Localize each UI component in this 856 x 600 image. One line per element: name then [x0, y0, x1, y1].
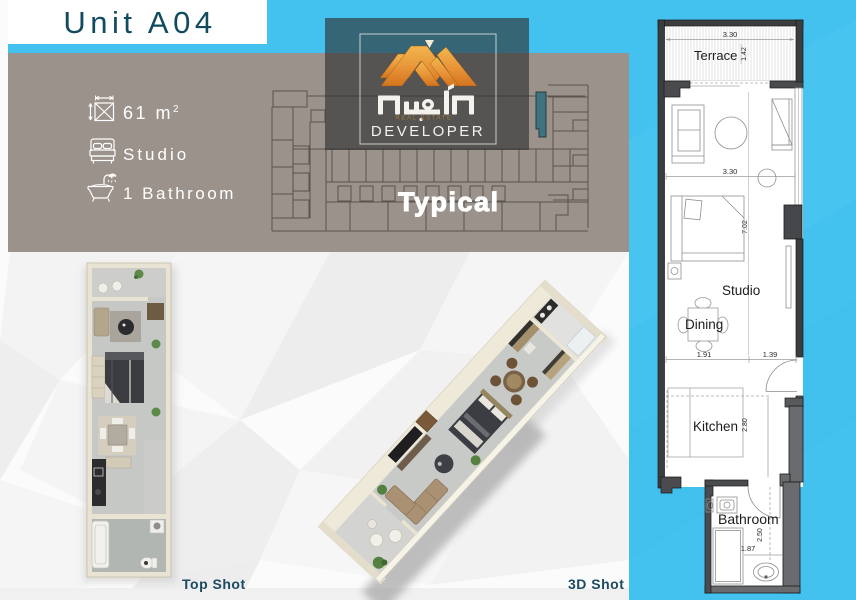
- svg-text:Terrace: Terrace: [694, 48, 737, 63]
- svg-text:Studio: Studio: [722, 283, 760, 298]
- svg-text:2.80: 2.80: [742, 418, 749, 432]
- svg-text:DEVELOPER: DEVELOPER: [371, 123, 485, 140]
- svg-text:3D Shot: 3D Shot: [568, 576, 624, 592]
- svg-text:2.50: 2.50: [757, 528, 764, 542]
- svg-text:Kitchen: Kitchen: [693, 419, 738, 434]
- svg-text:1.42: 1.42: [741, 47, 748, 61]
- svg-text:Dining: Dining: [685, 317, 723, 332]
- svg-text:Studio: Studio: [123, 145, 189, 164]
- svg-text:Unit A04: Unit A04: [63, 5, 216, 40]
- svg-text:3.30: 3.30: [723, 30, 738, 39]
- svg-text:Typical: Typical: [398, 187, 500, 217]
- svg-text:Top Shot: Top Shot: [182, 576, 246, 592]
- svg-text:7.02: 7.02: [742, 220, 749, 234]
- svg-text:1.39: 1.39: [763, 350, 778, 359]
- svg-text:1.91: 1.91: [697, 350, 712, 359]
- svg-text:1 Bathroom: 1 Bathroom: [123, 184, 236, 203]
- svg-text:61 m2: 61 m2: [123, 103, 181, 123]
- svg-text:REAL ESTATE: REAL ESTATE: [395, 116, 452, 122]
- svg-text:3.30: 3.30: [723, 167, 738, 176]
- svg-text:Bathroom: Bathroom: [718, 511, 779, 527]
- svg-text:1.87: 1.87: [741, 544, 756, 553]
